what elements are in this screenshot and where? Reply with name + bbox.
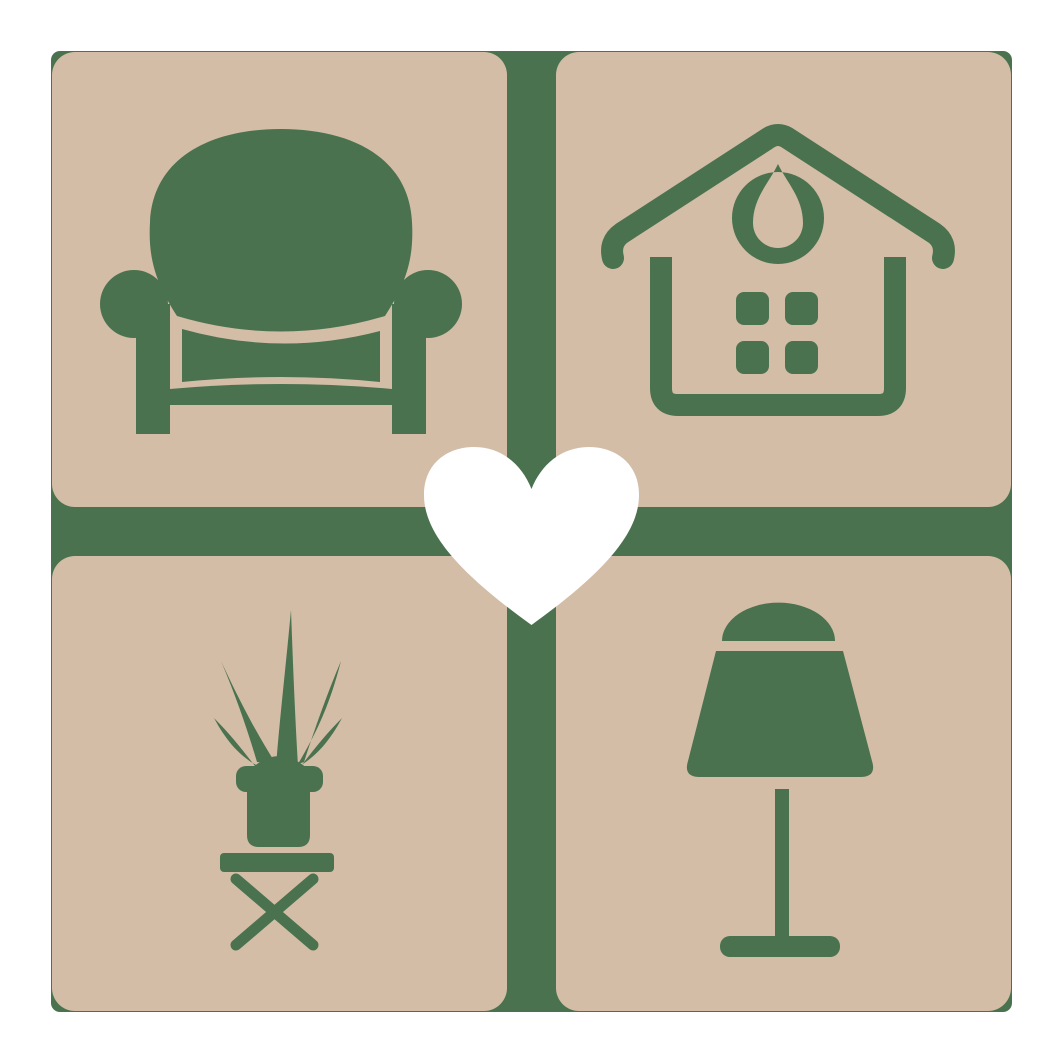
armchair-front-rail bbox=[170, 384, 392, 405]
armchair-leg-left bbox=[136, 304, 170, 434]
lamp-stem bbox=[775, 789, 789, 938]
stool-seat bbox=[220, 853, 334, 872]
armchair-leg-right bbox=[392, 304, 426, 434]
house-window-pane-top-left bbox=[736, 292, 769, 325]
house-window-pane-bottom-left bbox=[736, 341, 769, 374]
lamp-base bbox=[720, 936, 840, 957]
lamp-shade bbox=[687, 651, 873, 777]
plant-pot-body bbox=[247, 792, 310, 847]
house-window-pane-bottom-right bbox=[785, 341, 818, 374]
furniture-home-logo bbox=[0, 0, 1063, 1063]
plant-pot-rim bbox=[236, 766, 323, 792]
house-window-pane-top-right bbox=[785, 292, 818, 325]
logo-canvas bbox=[0, 0, 1063, 1063]
armchair-back bbox=[150, 129, 413, 332]
tile-house bbox=[556, 52, 1011, 507]
